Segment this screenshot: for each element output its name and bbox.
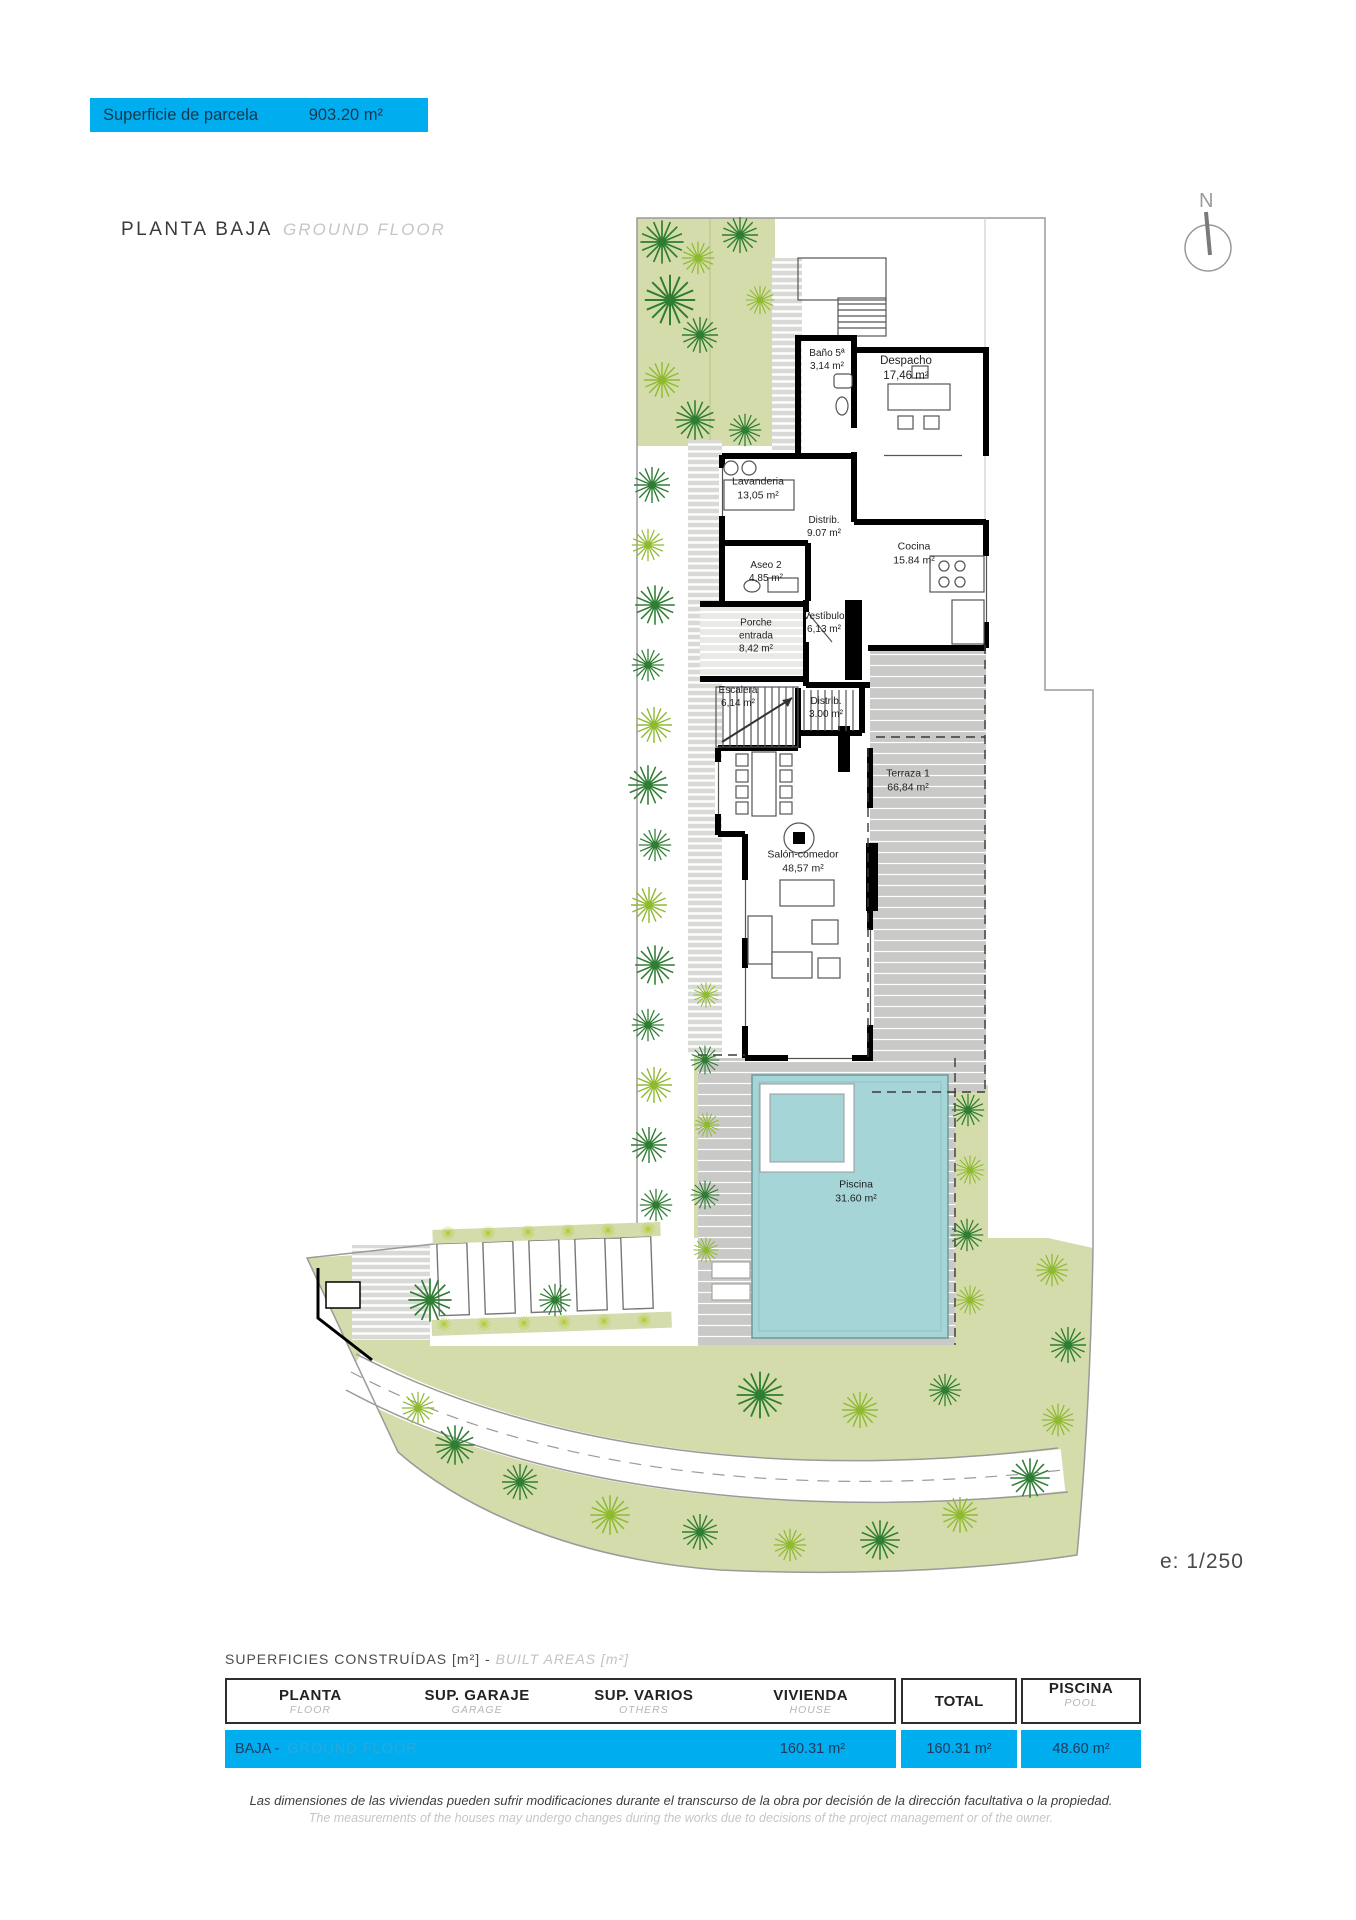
exterior-stairs	[798, 258, 886, 336]
table-row-pool: 48.60 m²	[1021, 1730, 1141, 1768]
table-row-total: 160.31 m²	[901, 1730, 1017, 1768]
col-varios: SUP. VARIOS OTHERS	[561, 1680, 728, 1722]
room-label-cocina: Cocina15.84 m²	[893, 540, 934, 567]
room-label-piscina: Piscina31.60 m²	[835, 1178, 876, 1205]
areas-table-header: PLANTA FLOOR SUP. GARAJE GARAGE SUP. VAR…	[225, 1678, 896, 1724]
room-label-despacho: Despacho17,46 m²	[880, 354, 932, 384]
parcel-area-value: 903.20 m²	[309, 106, 383, 125]
col-garaje: SUP. GARAJE GARAGE	[394, 1680, 561, 1722]
room-label-aseo2: Aseo 24,85 m²	[749, 559, 783, 585]
room-label-escalera: Escalera6,14 m²	[719, 684, 758, 710]
room-label-salon: Salón-comedor48,57 m²	[767, 848, 838, 875]
row-house-value: 160.31 m²	[727, 1741, 898, 1757]
room-label-lavanderia: Lavanderia13,05 m²	[732, 475, 784, 502]
north-label: N	[1199, 190, 1213, 213]
disclaimer: Las dimensiones de las viviendas pueden …	[120, 1792, 1242, 1826]
scale-label: e: 1/250	[1160, 1550, 1244, 1574]
plan-title-es: PLANTA BAJA	[121, 219, 273, 241]
row-floor-en: GROUND FLOOR	[287, 1741, 417, 1757]
pergola-slats	[428, 1222, 672, 1336]
plan-title-en: GROUND FLOOR	[283, 220, 446, 240]
disclaimer-es: Las dimensiones de las viviendas pueden …	[120, 1792, 1242, 1810]
col-piscina: PISCINA POOL	[1021, 1678, 1141, 1724]
room-label-terraza: Terraza 166,84 m²	[886, 767, 930, 794]
areas-table-heading: SUPERFICIES CONSTRUÍDAS [m²] - BUILT ARE…	[225, 1651, 629, 1667]
col-total: TOTAL	[901, 1678, 1017, 1724]
room-label-vestibulo: Vestíbulo6,13 m²	[803, 610, 844, 636]
room-label-distrib-1: Distrib.9.07 m²	[807, 514, 841, 540]
room-label-bano5: Baño 5ª3,14 m²	[809, 347, 844, 373]
row-floor-es: BAJA -	[235, 1741, 279, 1757]
col-planta: PLANTA FLOOR	[227, 1680, 394, 1722]
floor-plan-sheet: Superficie de parcela 903.20 m² PLANTA B…	[0, 0, 1356, 1920]
disclaimer-en: The measurements of the houses may under…	[120, 1810, 1242, 1827]
floor-plan-drawing	[0, 0, 1356, 1920]
north-arrow-icon	[1185, 212, 1231, 271]
table-row-baja: BAJA - GROUND FLOOR 160.31 m²	[225, 1730, 896, 1768]
room-label-distrib-2: Distrib.3.00 m²	[809, 695, 843, 721]
col-vivienda: VIVIENDA HOUSE	[727, 1680, 894, 1722]
parcel-area-label: Superficie de parcela	[103, 106, 258, 125]
parcel-area-banner: Superficie de parcela 903.20 m²	[90, 98, 428, 132]
terrace-area	[870, 645, 986, 1092]
room-label-porche: Porche entrada8,42 m²	[729, 617, 783, 656]
